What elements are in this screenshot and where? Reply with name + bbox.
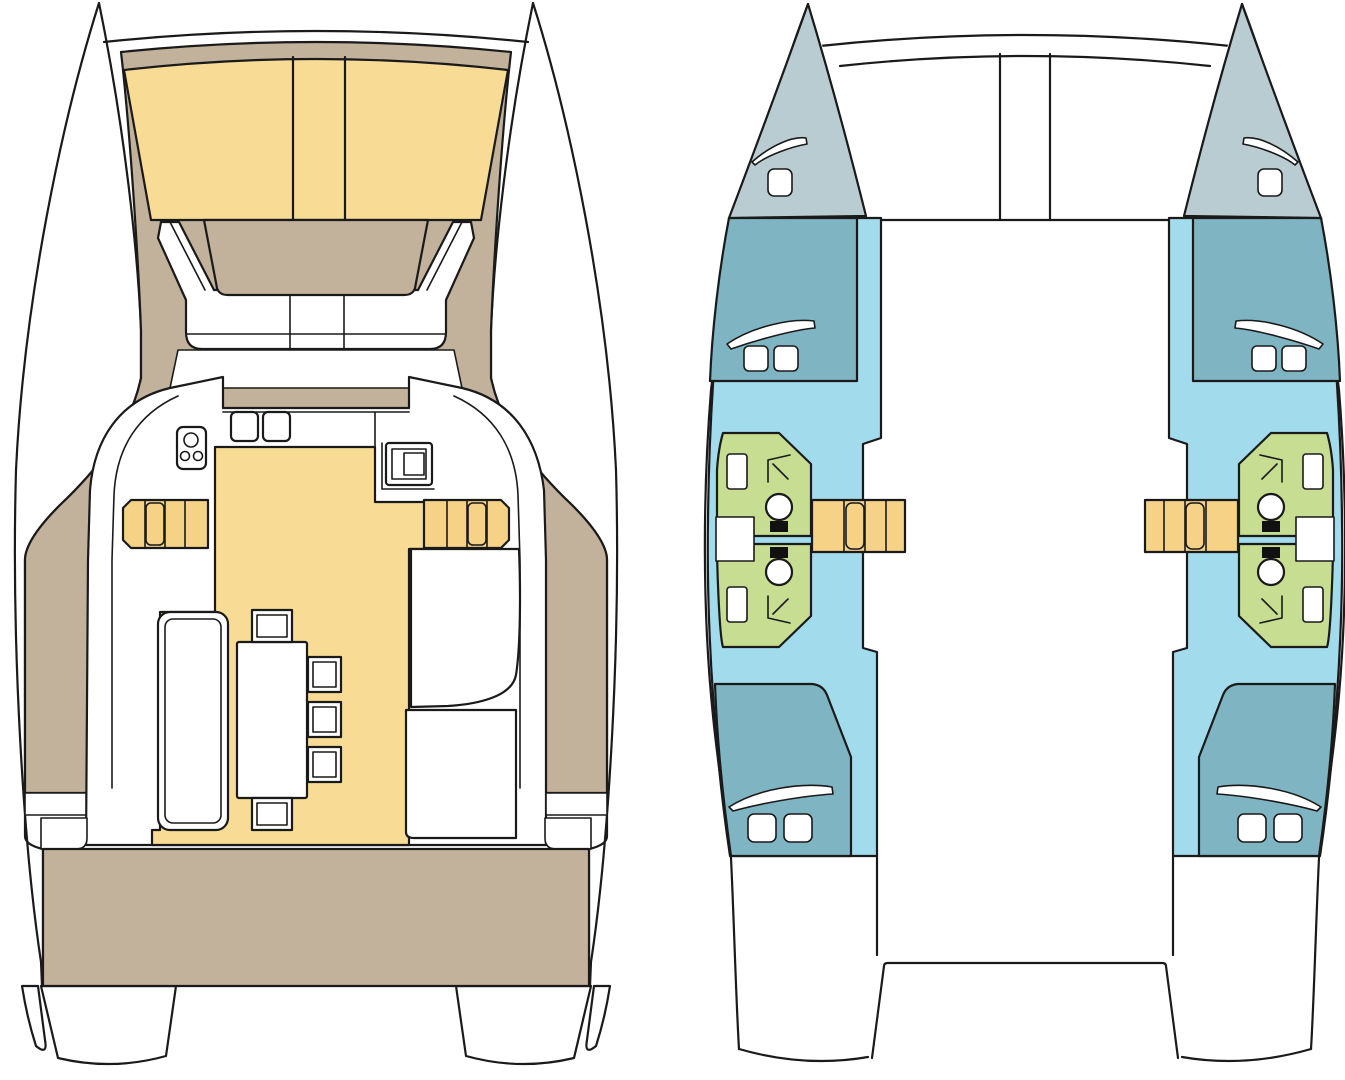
sink-aft — [727, 587, 747, 622]
galley-sink-right — [263, 412, 290, 441]
appliance-basin — [404, 453, 424, 475]
burner-small-left — [181, 452, 190, 461]
hull-plan-view — [705, 4, 1345, 1061]
sink-forward — [727, 454, 747, 489]
starboard-seat-forward — [411, 549, 520, 707]
bathroom-divider-locker — [716, 517, 754, 561]
chair-side-3 — [308, 747, 341, 782]
hull-companionway-steps — [812, 500, 905, 552]
foredeck-sun-pads — [124, 59, 508, 220]
galley-sink-left — [231, 412, 258, 441]
burner-small-right — [194, 452, 203, 461]
port-companionway-steps — [123, 500, 208, 548]
chair-foot — [252, 798, 292, 830]
forward-crossbeam — [820, 35, 1230, 220]
forward-berth-pillow-1 — [744, 346, 768, 371]
port-transom — [41, 986, 176, 1064]
catamaran-floorplan — [0, 0, 1345, 1080]
aft-berth-pillow-1 — [748, 814, 776, 842]
chair-side-1 — [308, 657, 341, 692]
burner-large — [184, 433, 198, 447]
aft-cockpit-floor — [43, 849, 589, 986]
floorplan-svg — [0, 0, 1345, 1080]
chair-side-2 — [308, 702, 341, 737]
forward-cockpit-table — [204, 220, 428, 295]
port-hull-interior — [705, 4, 905, 1061]
forward-berth-pillow-2 — [774, 346, 798, 371]
dining-table — [237, 642, 307, 798]
aft-cabin-berth — [715, 684, 851, 856]
sofa — [158, 612, 228, 830]
bow-crossbeam-arc — [104, 31, 528, 42]
stern-platform-edge — [872, 963, 1178, 1058]
aft-berth-pillow-2 — [784, 814, 812, 842]
deck-plan-view — [15, 3, 617, 1064]
bow-locker — [729, 4, 866, 218]
starboard-seat-aft — [406, 710, 516, 838]
starboard-hull-interior — [1145, 4, 1345, 1061]
bow-hatch — [768, 169, 792, 196]
port-hull-aft-strip — [22, 986, 46, 1050]
chair-head — [252, 610, 292, 642]
starboard-companionway-steps — [424, 500, 509, 548]
